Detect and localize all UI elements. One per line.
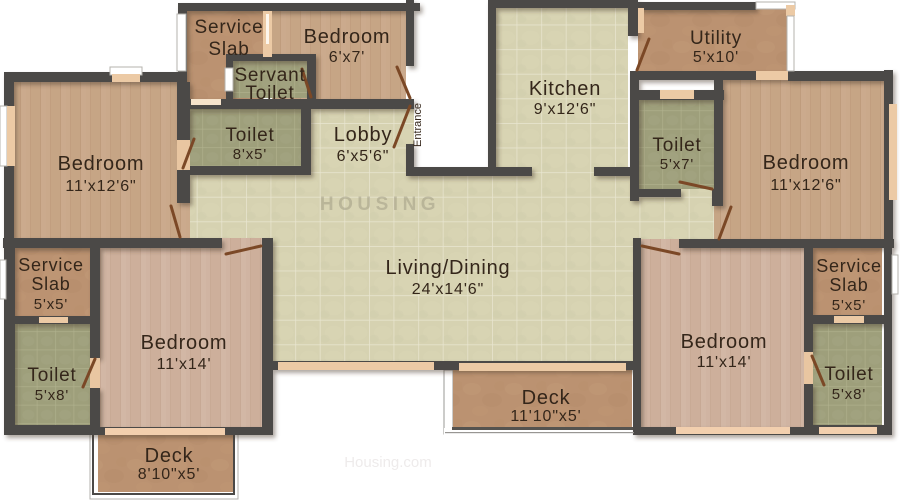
svg-text:Utility: Utility — [690, 28, 742, 49]
svg-text:5'x5': 5'x5' — [34, 296, 68, 313]
svg-text:5'x8': 5'x8' — [832, 386, 866, 403]
svg-text:Service: Service — [195, 17, 264, 38]
svg-text:Housing.com: Housing.com — [344, 454, 432, 471]
svg-text:6'x5'6": 6'x5'6" — [337, 148, 390, 165]
svg-text:Slab: Slab — [829, 275, 868, 295]
svg-text:Toilet: Toilet — [245, 83, 294, 104]
svg-text:Entrance: Entrance — [412, 103, 424, 147]
svg-text:11'x12'6": 11'x12'6" — [65, 178, 136, 195]
svg-text:Kitchen: Kitchen — [529, 78, 601, 100]
svg-text:11'10"x5': 11'10"x5' — [510, 408, 581, 425]
svg-text:5'x8': 5'x8' — [35, 387, 69, 404]
svg-text:11'x14': 11'x14' — [157, 356, 212, 373]
svg-text:8'10"x5': 8'10"x5' — [138, 466, 201, 483]
svg-text:9'x12'6": 9'x12'6" — [534, 101, 597, 118]
svg-text:Bedroom: Bedroom — [58, 153, 145, 175]
svg-text:Living/Dining: Living/Dining — [386, 257, 511, 279]
svg-text:Toilet: Toilet — [27, 365, 76, 386]
svg-text:Deck: Deck — [522, 387, 571, 409]
svg-text:Lobby: Lobby — [334, 124, 393, 146]
svg-text:8'x5': 8'x5' — [233, 146, 267, 163]
svg-text:Toilet: Toilet — [824, 364, 873, 385]
svg-text:Service: Service — [18, 255, 84, 275]
svg-text:Service: Service — [816, 256, 882, 276]
svg-text:5'x5': 5'x5' — [832, 297, 866, 314]
svg-text:Bedroom: Bedroom — [681, 331, 768, 353]
svg-text:5'x7': 5'x7' — [660, 156, 694, 173]
svg-text:Toilet: Toilet — [225, 125, 274, 146]
svg-text:5'x10': 5'x10' — [693, 49, 739, 66]
svg-text:Slab: Slab — [31, 274, 70, 294]
svg-text:Bedroom: Bedroom — [763, 152, 850, 174]
svg-text:HOUSING: HOUSING — [320, 194, 440, 215]
svg-text:24'x14'6": 24'x14'6" — [412, 281, 484, 298]
svg-text:Deck: Deck — [145, 445, 194, 467]
svg-text:Bedroom: Bedroom — [141, 332, 228, 354]
svg-text:Slab: Slab — [208, 39, 249, 60]
svg-text:11'x12'6": 11'x12'6" — [770, 177, 841, 194]
svg-text:11'x14': 11'x14' — [697, 354, 752, 371]
svg-text:6'x7': 6'x7' — [329, 49, 365, 66]
svg-text:Bedroom: Bedroom — [304, 26, 391, 48]
svg-text:Toilet: Toilet — [652, 135, 701, 156]
